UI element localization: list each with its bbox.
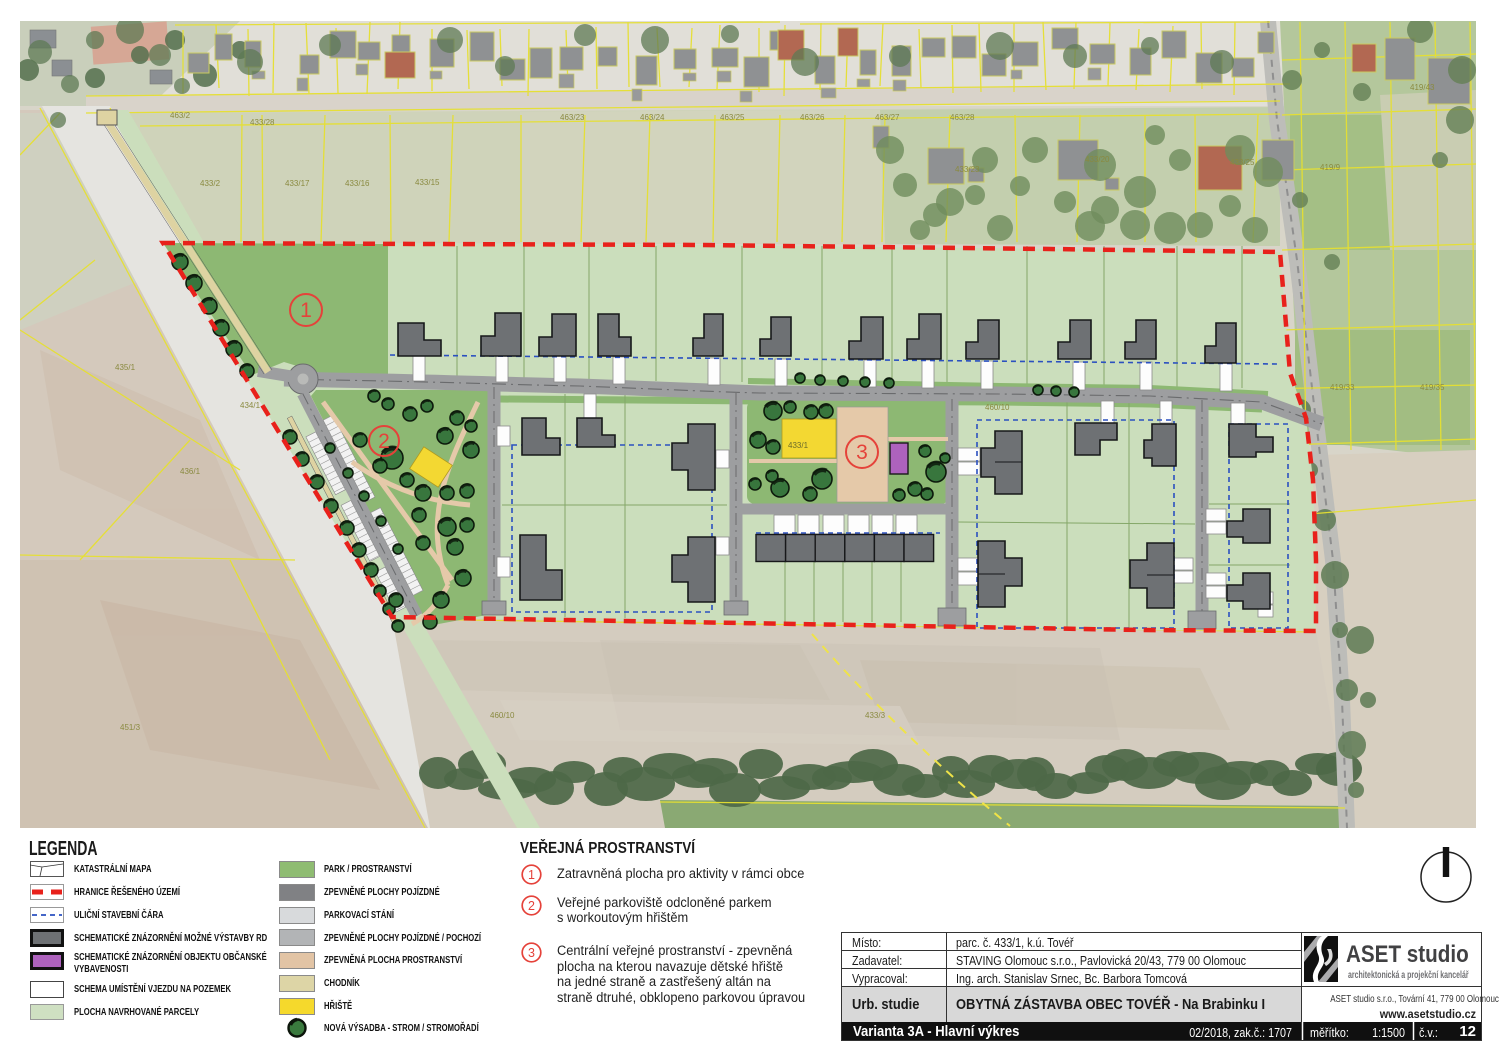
svg-text:463/23: 463/23 (560, 113, 585, 122)
svg-text:1: 1 (528, 868, 535, 882)
svg-text:419/9: 419/9 (1320, 163, 1341, 172)
svg-text:2: 2 (378, 430, 390, 453)
svg-text:463/2: 463/2 (170, 111, 191, 120)
svg-text:433/16: 433/16 (345, 179, 370, 188)
svg-text:435/1: 435/1 (115, 363, 136, 372)
svg-text:433/20: 433/20 (1085, 155, 1110, 164)
svg-text:433/28: 433/28 (250, 118, 275, 127)
svg-text:451/3: 451/3 (120, 723, 141, 732)
svg-text:463/28: 463/28 (950, 113, 975, 122)
svg-text:433/2: 433/2 (200, 179, 221, 188)
svg-text:2: 2 (528, 899, 535, 913)
svg-text:436/1: 436/1 (180, 467, 201, 476)
svg-text:463/26: 463/26 (800, 113, 825, 122)
svg-text:433/25: 433/25 (1230, 158, 1255, 167)
svg-text:419/35: 419/35 (1420, 383, 1445, 392)
svg-text:419/43: 419/43 (1410, 83, 1435, 92)
svg-text:463/25: 463/25 (720, 113, 745, 122)
svg-text:433/3: 433/3 (865, 711, 886, 720)
svg-text:419/33: 419/33 (1330, 383, 1355, 392)
svg-text:433/23: 433/23 (955, 165, 980, 174)
svg-text:3: 3 (528, 946, 535, 960)
svg-text:433/15: 433/15 (415, 178, 440, 187)
svg-text:463/27: 463/27 (875, 113, 900, 122)
svg-text:433/17: 433/17 (285, 179, 310, 188)
svg-text:460/10: 460/10 (985, 403, 1010, 412)
svg-text:434/1: 434/1 (240, 401, 261, 410)
svg-text:3: 3 (856, 441, 868, 464)
svg-text:1: 1 (300, 299, 312, 322)
svg-text:460/10: 460/10 (490, 711, 515, 720)
svg-text:433/1: 433/1 (788, 441, 809, 450)
svg-text:463/24: 463/24 (640, 113, 665, 122)
